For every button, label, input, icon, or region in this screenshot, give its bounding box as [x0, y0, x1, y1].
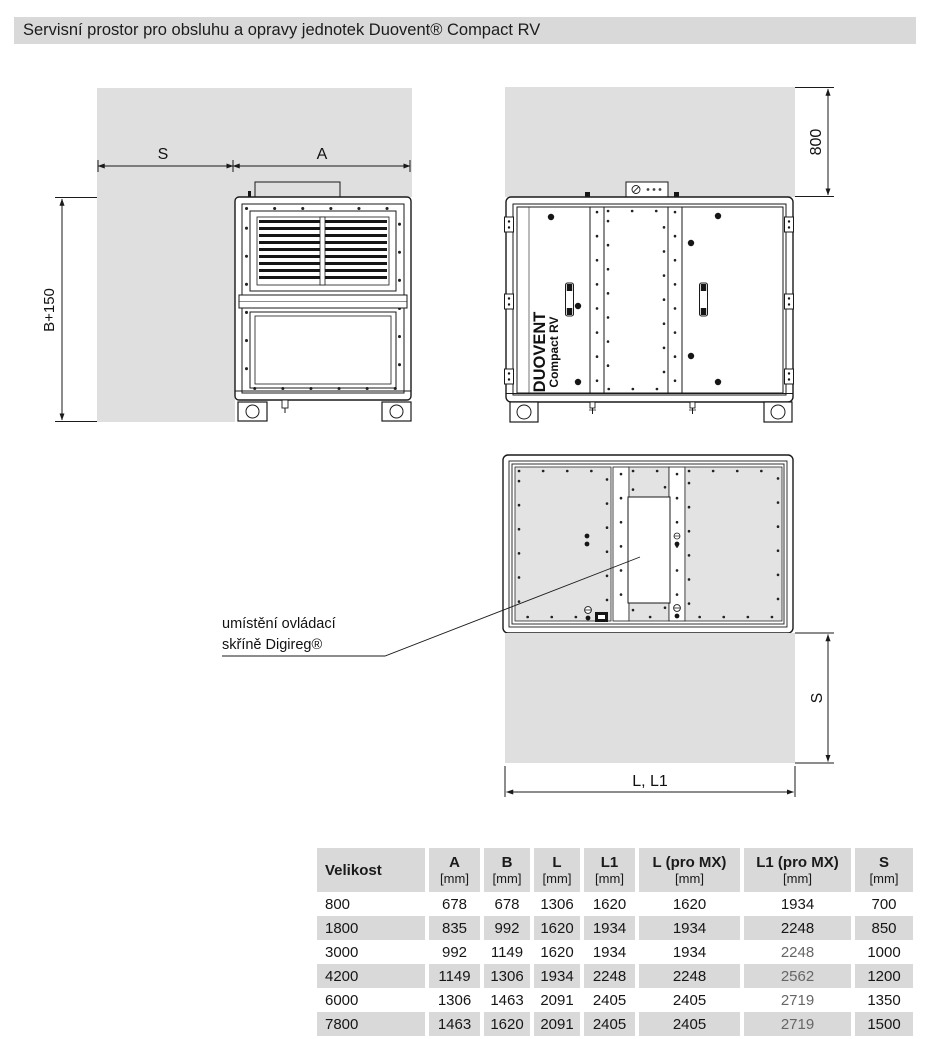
dimension-b150: B+150 — [41, 198, 97, 422]
value-cell: 1149 — [482, 940, 532, 964]
value-cell: 2405 — [637, 988, 742, 1012]
annotation-digireg-line2: skříně Digireg® — [222, 637, 322, 653]
top-view: S L, L1 umístění ovládací skříně Digireg… — [222, 455, 834, 797]
table-row: 78001463162020912405240527191500 — [317, 1012, 913, 1036]
value-cell: 1306 — [532, 892, 582, 916]
value-cell: 2248 — [582, 964, 637, 988]
size-cell: 3000 — [317, 940, 427, 964]
top-duct-flange — [255, 182, 340, 197]
roof-panel-left — [515, 467, 611, 621]
value-cell: 700 — [853, 892, 913, 916]
value-cell: 1200 — [853, 964, 913, 988]
brand-compact-rv: Compact RV — [547, 316, 561, 387]
value-cell: 2248 — [637, 964, 742, 988]
column-header: L1 (pro MX)[mm] — [742, 848, 853, 892]
value-cell: 2405 — [582, 988, 637, 1012]
front-view: 800 — [505, 87, 835, 422]
value-cell: 1934 — [742, 892, 853, 916]
value-cell: 850 — [853, 916, 913, 940]
dim-label-a: A — [317, 146, 328, 163]
value-cell: 2091 — [532, 1012, 582, 1036]
louver-grille — [250, 211, 396, 291]
value-cell: 1306 — [482, 964, 532, 988]
value-cell: 678 — [427, 892, 482, 916]
size-cell: 4200 — [317, 964, 427, 988]
control-box — [626, 182, 668, 197]
unit-side-view — [235, 182, 411, 421]
value-cell: 2091 — [532, 988, 582, 1012]
value-cell: 2719 — [742, 1012, 853, 1036]
column-header: L[mm] — [532, 848, 582, 892]
dimension-s-top-view: S — [795, 633, 834, 763]
page: Servisní prostor pro obsluhu a opravy je… — [0, 0, 930, 1039]
value-cell: 2719 — [742, 988, 853, 1012]
dim-label-s-top: S — [809, 693, 826, 704]
size-cell: 1800 — [317, 916, 427, 940]
table-row: 42001149130619342248224825621200 — [317, 964, 913, 988]
value-cell: 992 — [427, 940, 482, 964]
value-cell: 678 — [482, 892, 532, 916]
roof-panel-right — [685, 467, 782, 621]
table-body: 8006786781306162016201934700180083599216… — [317, 892, 913, 1036]
table-row: 60001306146320912405240527191350 — [317, 988, 913, 1012]
value-cell: 1463 — [482, 988, 532, 1012]
value-cell: 1463 — [427, 1012, 482, 1036]
value-cell: 2248 — [742, 916, 853, 940]
service-area-top — [505, 87, 795, 197]
value-cell: 1306 — [427, 988, 482, 1012]
dim-label-l-l1: L, L1 — [632, 773, 668, 790]
value-cell: 1934 — [582, 940, 637, 964]
value-cell: 1149 — [427, 964, 482, 988]
door-handle-right — [700, 283, 708, 316]
drain-fitting — [282, 400, 288, 408]
column-header: Velikost — [317, 848, 427, 892]
value-cell: 992 — [482, 916, 532, 940]
table-row: 18008359921620193419342248850 — [317, 916, 913, 940]
column-header: A[mm] — [427, 848, 482, 892]
value-cell: 2248 — [742, 940, 853, 964]
value-cell: 1620 — [532, 940, 582, 964]
technical-drawing: S A B+150 — [0, 0, 930, 830]
value-cell: 1934 — [637, 916, 742, 940]
column-header: L1[mm] — [582, 848, 637, 892]
dimensions-table: VelikostA[mm]B[mm]L[mm]L1[mm]L (pro MX)[… — [317, 848, 913, 1036]
value-cell: 1620 — [482, 1012, 532, 1036]
size-cell: 800 — [317, 892, 427, 916]
size-cell: 7800 — [317, 1012, 427, 1036]
value-cell: 1620 — [582, 892, 637, 916]
value-cell: 1620 — [532, 916, 582, 940]
value-cell: 2562 — [742, 964, 853, 988]
annotation-digireg-line1: umístění ovládací — [222, 616, 336, 632]
digireg-cabinet-area — [628, 497, 670, 603]
dim-label-800: 800 — [808, 129, 825, 156]
dimension-l-l1: L, L1 — [505, 766, 795, 797]
table-row: 3000992114916201934193422481000 — [317, 940, 913, 964]
dim-label-s-side: S — [158, 146, 169, 163]
door-handle-left — [566, 283, 574, 316]
column-header: B[mm] — [482, 848, 532, 892]
table-row: 8006786781306162016201934700 — [317, 892, 913, 916]
unit-top-view — [503, 455, 793, 633]
unit-front-view: DUOVENT Compact RV — [505, 197, 794, 422]
value-cell: 1934 — [532, 964, 582, 988]
column-header: L (pro MX)[mm] — [637, 848, 742, 892]
table-header-row: VelikostA[mm]B[mm]L[mm]L1[mm]L (pro MX)[… — [317, 848, 913, 892]
column-header: S[mm] — [853, 848, 913, 892]
dim-label-b150: B+150 — [41, 288, 58, 332]
value-cell: 1934 — [582, 916, 637, 940]
value-cell: 1934 — [637, 940, 742, 964]
size-cell: 6000 — [317, 988, 427, 1012]
dimension-800: 800 — [795, 88, 834, 197]
value-cell: 1620 — [637, 892, 742, 916]
value-cell: 2405 — [582, 1012, 637, 1036]
service-area-bottom — [505, 633, 795, 763]
side-view: S A B+150 — [41, 88, 412, 422]
value-cell: 1000 — [853, 940, 913, 964]
value-cell: 2405 — [637, 1012, 742, 1036]
value-cell: 835 — [427, 916, 482, 940]
value-cell: 1350 — [853, 988, 913, 1012]
value-cell: 1500 — [853, 1012, 913, 1036]
